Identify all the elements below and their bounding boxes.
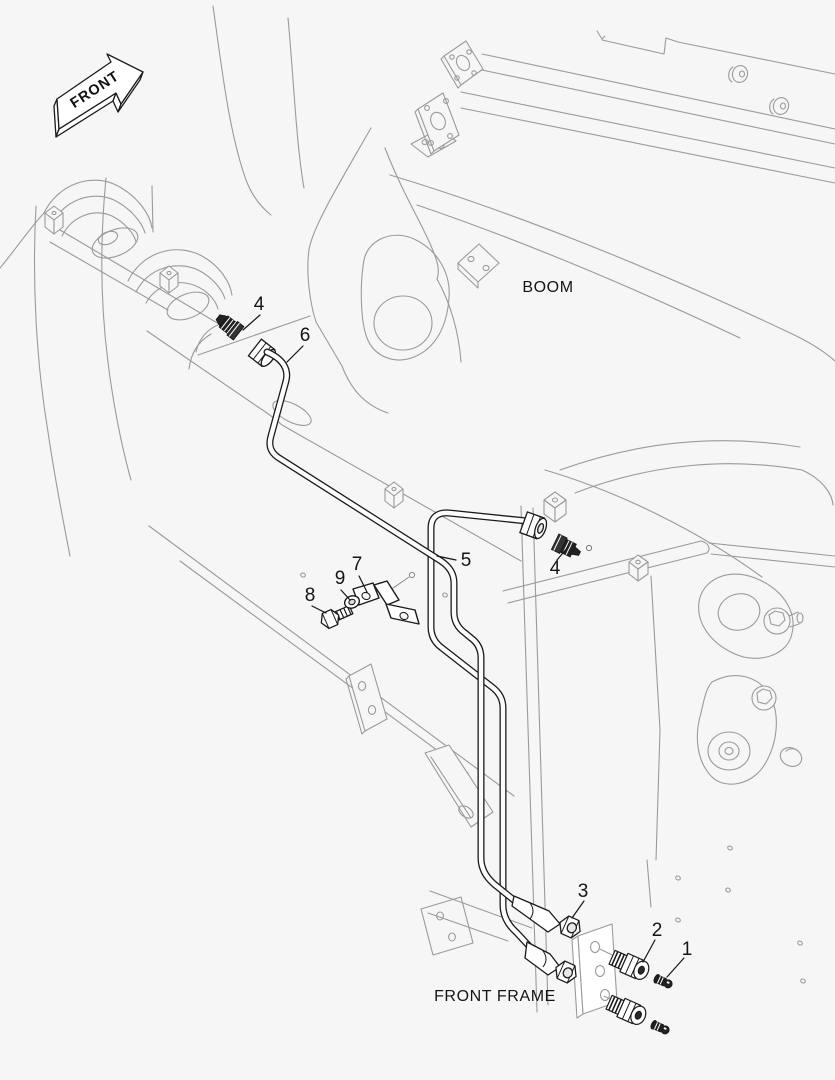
pivot-lug-lower	[697, 676, 804, 785]
grease-nipple-1-upper	[653, 974, 674, 990]
grease-nipple-1-lower	[650, 1020, 671, 1036]
callout-2: 2	[646, 921, 668, 941]
adapter-2-lower	[605, 993, 649, 1027]
parts-diagram-page: FRONT BOOM FRONT FRAME 4 6 5 7 9 8 4 3 2…	[0, 0, 835, 1080]
callout-6: 6	[294, 326, 316, 346]
callout-3: 3	[572, 882, 594, 902]
pipe-clamp-7	[353, 572, 419, 624]
callout-5: 5	[455, 551, 477, 571]
callout-leaders	[243, 315, 684, 977]
callout-1: 1	[676, 940, 698, 960]
grease-fitting-4-upper	[213, 311, 278, 369]
diagram-canvas	[0, 0, 835, 1080]
boom-label: BOOM	[507, 279, 589, 297]
pipe-end-upper	[512, 896, 584, 940]
callout-9: 9	[329, 569, 351, 589]
callout-8: 8	[299, 586, 321, 606]
pipe-end-lower	[525, 942, 580, 985]
pivot-lug-upper	[699, 574, 803, 658]
callout-4-boom: 4	[544, 559, 566, 579]
machine-outline	[0, 6, 835, 1012]
front-frame-label: FRONT FRAME	[412, 988, 578, 1006]
callout-4-upper: 4	[248, 295, 270, 315]
grease-pipe-6	[267, 352, 515, 901]
